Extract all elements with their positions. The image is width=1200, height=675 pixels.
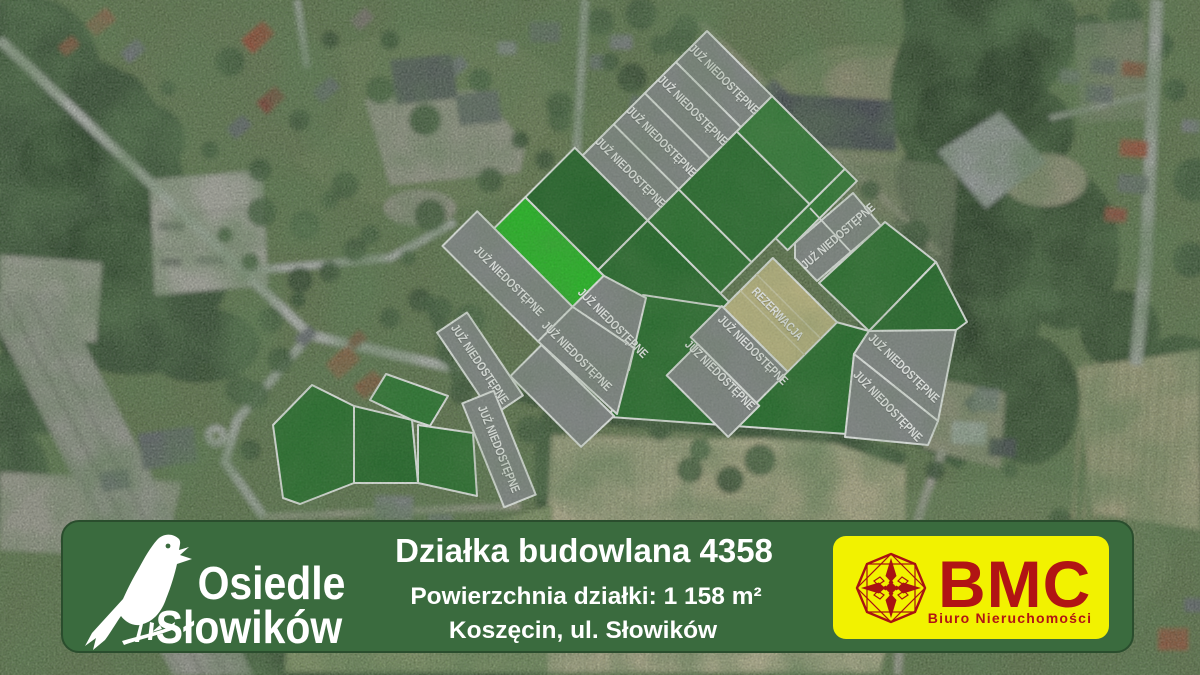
svg-text:Słowików: Słowików <box>156 603 343 654</box>
svg-text:Powierzchnia działki: 1 158 m²: Powierzchnia działki: 1 158 m² <box>410 583 761 610</box>
svg-text:Biuro Nieruchomości: Biuro Nieruchomości <box>928 610 1092 626</box>
svg-text:Koszęcin, ul. Słowików: Koszęcin, ul. Słowików <box>449 617 718 644</box>
svg-text:Działka budowlana 4358: Działka budowlana 4358 <box>395 532 773 569</box>
